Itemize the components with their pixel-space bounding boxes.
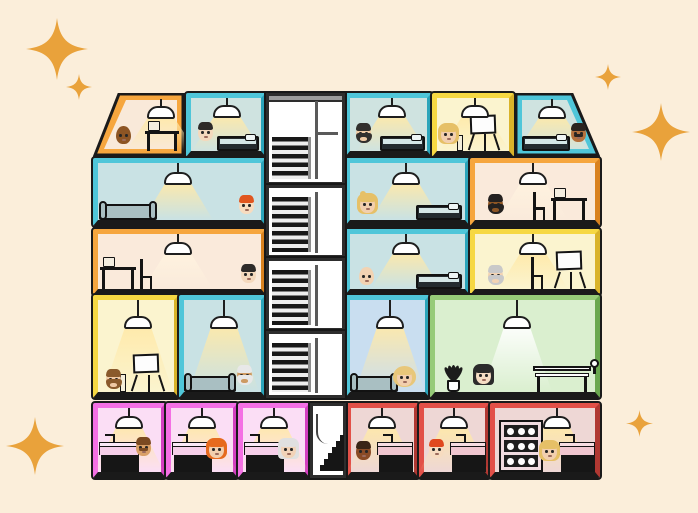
staircase	[272, 137, 311, 179]
counter-lamp-pole	[186, 434, 188, 443]
pendant-lamp-icon	[376, 300, 404, 329]
room-interior	[171, 408, 233, 472]
lamp-cord	[453, 408, 455, 416]
lamp-dome	[440, 416, 468, 429]
stairwell-roof	[269, 96, 342, 102]
room-interior	[437, 98, 509, 151]
easel-canvas	[556, 251, 583, 271]
stairwell-section-4	[266, 331, 345, 398]
bottle-dot	[518, 458, 525, 465]
illustration-canvas	[0, 0, 698, 513]
couch-furniture	[184, 376, 236, 392]
mouth	[362, 455, 366, 457]
counter-base	[379, 455, 413, 472]
laptop-icon	[554, 188, 566, 198]
bed-furniture	[217, 136, 259, 151]
bottle-dot	[528, 443, 535, 450]
stair-door-frame	[315, 192, 318, 253]
lamp-cord	[391, 98, 393, 105]
basement-stairs	[310, 403, 346, 478]
person-older-woman-white-hair	[280, 438, 297, 458]
easel-furniture	[551, 251, 589, 289]
easel-leg	[493, 134, 501, 151]
room-interior	[495, 408, 595, 472]
lamp-dome	[115, 416, 143, 429]
lamp-dome	[378, 105, 406, 118]
room-interior	[475, 234, 595, 289]
desk-leg	[582, 200, 585, 220]
desk-furniture	[551, 186, 587, 220]
lamp-cord	[177, 163, 179, 172]
person-woman-blonde-ponytail	[359, 193, 376, 213]
bed-furniture	[522, 136, 570, 151]
lamp-cord	[551, 99, 553, 106]
easel-furniture	[128, 354, 168, 392]
eye	[479, 374, 482, 377]
lamp-dome	[164, 242, 192, 255]
room-f3-studio-yellow	[470, 229, 600, 295]
hair-top	[488, 265, 503, 273]
stair-door-frame	[315, 338, 318, 394]
stairwell-section-2	[266, 185, 345, 258]
lamp-cord	[137, 300, 139, 316]
mouth	[122, 139, 126, 141]
room-interior	[98, 234, 261, 289]
room-f5-red-3-cellar	[490, 403, 600, 478]
room-f3-office-left	[93, 229, 266, 295]
hair-top	[356, 123, 371, 131]
lamp-dome	[260, 416, 288, 429]
desk-furniture	[100, 255, 136, 289]
stairwell-section-1	[266, 93, 345, 185]
pendant-lamp-icon	[164, 163, 192, 185]
lamp-cord	[226, 98, 228, 105]
lamp-dome	[538, 106, 566, 119]
stairwell-section-3	[266, 258, 345, 331]
room-interior	[351, 408, 414, 472]
mouth	[247, 278, 251, 280]
hair-top	[429, 439, 444, 447]
lamp-dome	[543, 416, 571, 429]
pendant-lamp-icon	[538, 99, 566, 119]
mustache	[574, 134, 583, 136]
lamp-cord	[160, 99, 162, 106]
lamp-cord	[516, 300, 518, 316]
eye	[444, 133, 447, 136]
room-interior	[98, 163, 261, 220]
person-man-brown-beard	[105, 368, 122, 388]
counter-furniture	[559, 432, 595, 472]
counter-body	[450, 447, 486, 455]
sparkle-icon	[632, 103, 690, 161]
hair-top	[209, 439, 224, 447]
hair-top	[441, 124, 456, 132]
counter-body	[377, 447, 413, 455]
lamp-cord	[389, 300, 391, 316]
room-f5-pink-1	[93, 403, 166, 478]
pendant-lamp-icon	[519, 163, 547, 185]
pendant-lamp-icon	[188, 408, 216, 429]
plant-furniture	[443, 348, 465, 392]
pendant-lamp-icon	[392, 163, 420, 185]
pendant-lamp-icon	[213, 98, 241, 118]
mouth	[204, 136, 208, 138]
room-interior	[243, 408, 305, 472]
room-f2-office-orange	[470, 158, 600, 226]
room-f5-pink-2	[166, 403, 238, 478]
eye	[362, 275, 365, 278]
room-interior	[350, 163, 465, 220]
eye	[119, 134, 122, 137]
pendant-lamp-icon	[147, 99, 175, 119]
bed-furniture	[380, 136, 425, 151]
bed-pillow	[448, 272, 459, 279]
mouth	[142, 451, 146, 453]
person-man-red-hair	[428, 438, 445, 458]
mouth	[435, 453, 439, 455]
laptop-icon	[148, 121, 160, 131]
easel-leg	[484, 134, 486, 151]
bed-pillow	[556, 134, 567, 141]
mustache	[139, 448, 148, 450]
hair-top	[136, 437, 151, 445]
easel-leg	[554, 272, 562, 289]
room-f4-lounge-green	[430, 295, 600, 398]
easel-leg	[131, 375, 139, 392]
lamp-dome	[124, 316, 152, 329]
bed-pillow	[411, 134, 422, 141]
chair-furniture	[533, 192, 547, 220]
bottle-dot	[528, 458, 535, 465]
mouth	[245, 209, 249, 211]
pendant-lamp-icon	[440, 408, 468, 429]
counter-lamp-pole	[464, 434, 466, 443]
mouth-area	[110, 383, 117, 387]
desk-leg	[147, 133, 150, 151]
eye	[284, 448, 287, 451]
room-interior	[520, 99, 594, 151]
couch-arm	[350, 373, 358, 392]
chair-leg	[150, 276, 152, 290]
counter-base	[174, 455, 212, 472]
lamp-cord	[405, 163, 407, 172]
counter-base	[452, 455, 486, 472]
stair-door-frame	[315, 101, 318, 179]
pendant-lamp-icon	[260, 408, 288, 429]
sparkle-icon	[6, 417, 64, 475]
desk-leg	[131, 269, 134, 289]
chair-leg	[543, 207, 545, 220]
laptop-icon	[103, 257, 115, 267]
person-person-dark-skin	[355, 440, 372, 460]
pendant-lamp-icon	[392, 234, 420, 255]
easel-leg	[158, 375, 166, 392]
room-f1-bedroom-3	[345, 93, 432, 157]
pendant-lamp-icon	[519, 234, 547, 255]
eye	[359, 450, 362, 453]
room-interior	[424, 408, 485, 472]
bottle-dot	[518, 428, 525, 435]
sparkle-icon	[595, 64, 621, 90]
person-boy-red-hair	[238, 194, 255, 214]
lamp-dome	[376, 316, 404, 329]
room-f1-attic-right	[514, 93, 600, 157]
room-f4-studio-yellow	[93, 295, 179, 398]
chair-leg	[541, 275, 543, 289]
rack-shelf	[504, 455, 538, 467]
person-older-person-bald	[358, 265, 375, 285]
counter-body	[99, 447, 139, 455]
person-man-dark-skin-beard	[487, 193, 504, 213]
lamp-cord	[273, 408, 275, 416]
easel-furniture	[465, 115, 503, 151]
bed-furniture	[416, 205, 462, 220]
bed-furniture	[416, 274, 462, 289]
person-man-mustache-medium-skin	[570, 122, 587, 142]
room-interior	[99, 99, 179, 151]
easel-leg	[570, 272, 572, 289]
couch-arm	[149, 201, 157, 220]
lamp-dome	[147, 106, 175, 119]
pendant-lamp-icon	[115, 408, 143, 429]
sparkle-icon	[626, 410, 653, 437]
bench-top	[533, 366, 591, 371]
mouth-area	[360, 137, 367, 141]
bottle-dot	[507, 428, 514, 435]
lamp-dome	[503, 316, 531, 329]
ponytail	[360, 191, 366, 197]
rack-furniture	[499, 420, 543, 472]
chair-furniture	[531, 257, 545, 289]
room-interior	[475, 163, 595, 220]
person-older-man-gray-beard	[487, 264, 504, 284]
room-f1-studio-yellow	[432, 93, 514, 157]
chair-leg	[532, 275, 534, 289]
staircase	[272, 197, 311, 252]
eye	[244, 273, 247, 276]
eye	[545, 450, 548, 453]
room-f2-bedroom-mid	[345, 158, 470, 226]
couch-furniture	[99, 204, 157, 220]
room-f3-bedroom-mid	[345, 229, 470, 295]
desk-leg	[102, 269, 105, 289]
room-f5-pink-3	[238, 403, 310, 478]
lamp-cord	[532, 234, 534, 242]
counter-body	[559, 447, 595, 455]
sparkle-icon	[66, 74, 92, 100]
mouth	[365, 280, 369, 282]
mouth	[548, 455, 552, 457]
bottle-dot	[518, 443, 525, 450]
bed-pillow	[245, 134, 256, 141]
lamp-cord	[532, 163, 534, 172]
staircase	[272, 343, 311, 392]
mouth-area	[241, 379, 248, 383]
room-interior	[184, 300, 261, 392]
rack-shelf	[504, 425, 538, 437]
hair-top	[542, 441, 557, 449]
room-f5-red-1	[346, 403, 419, 478]
room-f2-bedroom-left	[93, 158, 266, 226]
easel-leg	[148, 375, 150, 392]
stair-landing-rail	[317, 132, 338, 135]
hair-top	[571, 123, 586, 131]
person-man-dark-beard	[355, 122, 372, 142]
mouth	[403, 381, 407, 383]
couch-arm	[228, 373, 236, 392]
pendant-lamp-icon	[461, 98, 489, 118]
lamp-dome	[188, 416, 216, 429]
hair-top	[488, 194, 503, 202]
lamp-cord	[223, 300, 225, 316]
eye	[201, 131, 204, 134]
desk-furniture	[145, 119, 179, 151]
counter-lamp-pole	[573, 434, 575, 443]
person-woman-black-bob	[475, 364, 492, 384]
pendant-lamp-icon	[124, 300, 152, 329]
hair-top	[397, 367, 412, 375]
lamp-dome	[392, 172, 420, 185]
lamp-cord	[405, 234, 407, 242]
counter-furniture	[377, 432, 413, 472]
lamp-dome	[519, 242, 547, 255]
eye	[400, 376, 403, 379]
pendant-lamp-icon	[503, 300, 531, 329]
counter-lamp-pole	[391, 434, 393, 443]
stair-step	[340, 435, 344, 471]
room-interior	[191, 98, 261, 151]
pendant-lamp-icon	[368, 408, 396, 429]
hair-top	[237, 365, 252, 373]
person-woman-blonde	[440, 123, 457, 143]
counter-furniture	[450, 432, 486, 472]
chair-leg	[141, 276, 143, 290]
lamp-cord	[381, 408, 383, 416]
hair-top	[476, 365, 491, 373]
lamp-dome	[461, 105, 489, 118]
pendant-lamp-icon	[210, 300, 238, 329]
lamp-dome	[519, 172, 547, 185]
room-interior	[350, 300, 425, 392]
bottle-dot	[528, 428, 535, 435]
person-man-brown-mustache	[135, 436, 152, 456]
bottle-dot	[507, 458, 514, 465]
counter-base	[101, 455, 139, 472]
hair-top	[198, 122, 213, 130]
stair-door-frame	[315, 265, 318, 326]
room-interior	[350, 98, 427, 151]
bottle-dot	[507, 443, 514, 450]
room-interior	[98, 300, 174, 392]
eye	[363, 203, 366, 206]
mouth	[287, 453, 291, 455]
chair-leg	[534, 207, 536, 220]
staircase	[272, 270, 311, 325]
desk-leg	[553, 200, 556, 220]
pendant-lamp-icon	[543, 408, 571, 429]
hair-top	[281, 439, 296, 447]
pendant-lamp-icon	[378, 98, 406, 118]
lamp-dome	[368, 416, 396, 429]
room-interior	[435, 300, 595, 392]
bed-pillow	[448, 203, 459, 210]
room-f1-bedroom-2	[186, 93, 266, 157]
counter-furniture	[99, 432, 139, 472]
room-f4-lounge-blue	[345, 295, 430, 398]
mouth-area	[492, 279, 499, 283]
mouth-area	[492, 208, 499, 212]
person-boy-black-hair	[240, 263, 257, 283]
room-f5-red-2	[419, 403, 490, 478]
bench-furniture	[533, 366, 591, 392]
easel-canvas	[133, 354, 160, 374]
eye	[212, 448, 215, 451]
person-woman-orange-hair	[208, 438, 225, 458]
counter-lamp-pole	[113, 434, 115, 443]
lamp-cord	[177, 234, 179, 242]
pendant-lamp-icon	[164, 234, 192, 255]
lamp-dome	[392, 242, 420, 255]
couch-furniture	[350, 376, 398, 392]
couch-arm	[99, 201, 107, 220]
bench-leg	[584, 376, 587, 392]
person-woman-blonde-2	[541, 440, 558, 460]
lamp-dome	[213, 105, 241, 118]
room-f4-lounge-teal	[179, 295, 266, 398]
mouth	[577, 137, 581, 139]
couch-arm	[184, 373, 192, 392]
rack-shelf	[504, 440, 538, 452]
person-older-man-white-beard	[236, 364, 253, 384]
bench-lamp-stem	[593, 367, 595, 374]
room-f1-attic-left	[93, 93, 185, 157]
counter-base	[561, 455, 595, 472]
lamp-cord	[474, 98, 476, 105]
bench-rail	[535, 373, 589, 377]
room-interior	[98, 408, 161, 472]
easel-leg	[579, 272, 587, 289]
chair-furniture	[140, 259, 154, 289]
hair-top	[241, 264, 256, 272]
bench-leg	[537, 376, 540, 392]
mouth	[447, 138, 451, 140]
sparkle-icon	[26, 18, 88, 80]
lamp-cord	[201, 408, 203, 416]
lamp-cord	[556, 408, 558, 416]
desk-leg	[174, 133, 177, 151]
hair-top	[239, 195, 254, 203]
easel-leg	[468, 134, 476, 151]
counter-lamp-pole	[258, 434, 260, 443]
mouth	[482, 379, 486, 381]
room-interior	[350, 234, 465, 289]
lamp-cord	[128, 408, 130, 416]
person-woman-blonde-curly	[396, 366, 413, 386]
eye	[242, 204, 245, 207]
lamp-dome	[164, 172, 192, 185]
eye	[432, 448, 435, 451]
hair-top	[356, 441, 371, 449]
plant-pot	[447, 380, 460, 392]
stair-rail	[316, 414, 328, 444]
lamp-dome	[210, 316, 238, 329]
person-man-black-hair	[197, 121, 214, 141]
hair-top	[106, 369, 121, 377]
mouth	[215, 453, 219, 455]
mouth	[366, 208, 370, 210]
person-man-dark-skin-bald	[115, 124, 132, 144]
